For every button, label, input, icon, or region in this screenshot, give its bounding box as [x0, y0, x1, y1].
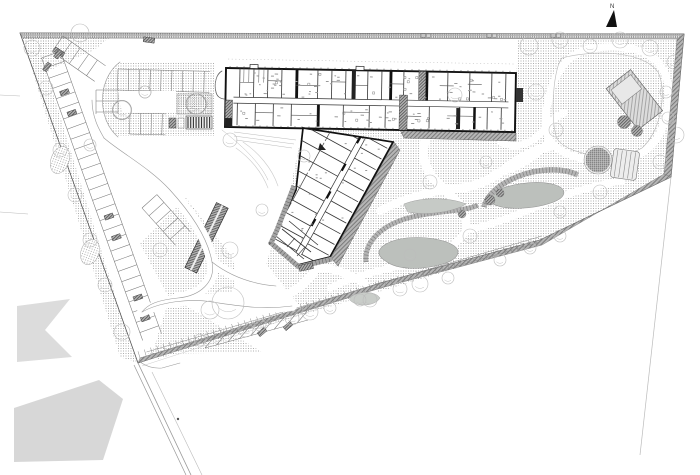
svg-text:N: N: [610, 4, 614, 10]
